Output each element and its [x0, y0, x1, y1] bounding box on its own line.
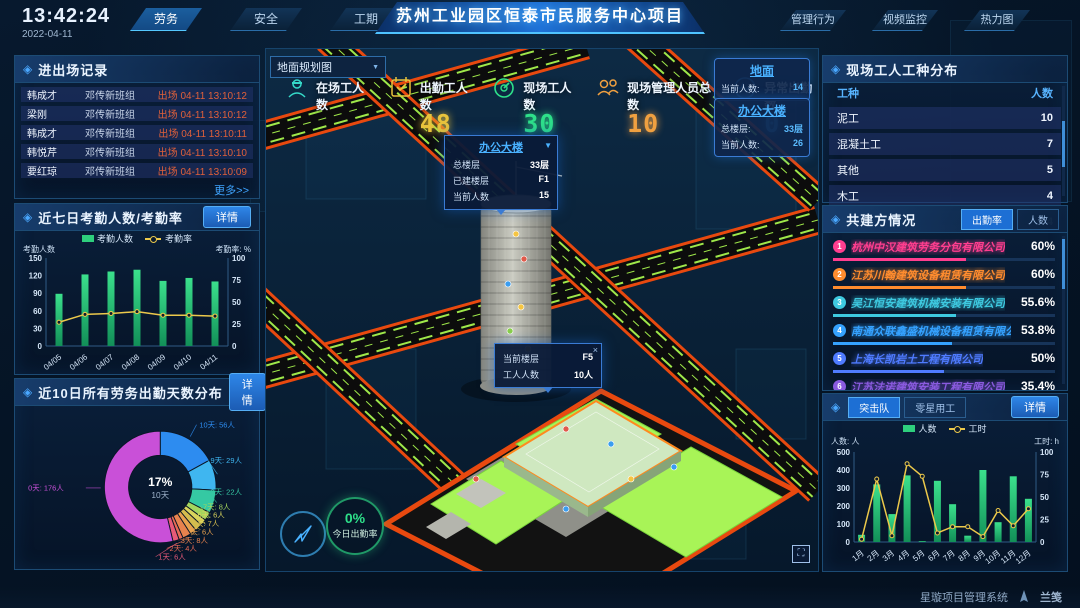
time-display: 13:42:24: [22, 5, 110, 28]
svg-text:1天: 6人: 1天: 6人: [158, 553, 186, 562]
rank-badge: 6: [833, 380, 846, 391]
svg-text:04/11: 04/11: [198, 352, 219, 371]
partner-row[interactable]: 1杭州中汉建筑劳务分包有限公司60%: [833, 239, 1057, 261]
calendar-check-icon: [388, 75, 414, 106]
svg-text:04/08: 04/08: [120, 352, 142, 372]
svg-text:9天: 29人: 9天: 29人: [210, 456, 242, 465]
svg-text:04/07: 04/07: [94, 352, 116, 372]
svg-text:90: 90: [33, 289, 42, 298]
squad-tabs: 突击队零星用工: [848, 397, 966, 418]
system-name: 星璇项目管理系统: [920, 589, 1008, 605]
map-view-dropdown[interactable]: 地面规划图 ▼: [270, 56, 386, 78]
distribution-donut-chart: 10天: 56人9天: 29人8天: 22人7天: 8人6天: 6人5天: 7人…: [16, 407, 258, 567]
entry-exit-list: 韩成才邓传新班组出场 04-11 13:10:12梁刚邓传新班组出场 04-11…: [15, 87, 259, 178]
partner-row[interactable]: 6江苏法诺建筑安装工程有限公司35.4%: [833, 379, 1057, 391]
svg-text:04/10: 04/10: [172, 352, 194, 372]
stat-出勤工人数: 出勤工人数48: [388, 75, 474, 135]
svg-text:75: 75: [232, 276, 241, 285]
legend-line-swatch: [949, 428, 965, 430]
worker-icon: [284, 75, 310, 106]
rank-badge: 4: [833, 324, 846, 337]
partner-row[interactable]: 3吴江恒安建筑机械安装有限公司55.6%: [833, 295, 1057, 317]
distribution-panel: ◈ 近10日所有劳务出勤天数分布 详情 10天: 56人9天: 29人8天: 2…: [14, 378, 260, 570]
attendance-detail-button[interactable]: 详情: [203, 206, 251, 228]
stat-value: 48: [420, 113, 474, 135]
svg-text:50: 50: [1040, 493, 1049, 502]
svg-text:0: 0: [38, 342, 43, 351]
entry-exit-row[interactable]: 梁刚邓传新班组出场 04-11 13:10:12: [21, 106, 253, 121]
rank-badge: 3: [833, 296, 846, 309]
svg-text:17%: 17%: [148, 475, 172, 489]
svg-text:50: 50: [232, 298, 241, 307]
panel-diamond-icon: ◈: [831, 212, 840, 226]
entry-exit-panel: ◈ 进出场记录 韩成才邓传新班组出场 04-11 13:10:12梁刚邓传新班组…: [14, 55, 260, 199]
worker-type-row[interactable]: 泥工10: [829, 107, 1061, 129]
stat-现场管理人员总数: 现场管理人员总数10: [595, 75, 714, 135]
worker-type-row[interactable]: 木工4: [829, 185, 1061, 207]
svg-text:100: 100: [837, 520, 851, 529]
more-link[interactable]: 更多>>: [15, 182, 249, 198]
entry-exit-row[interactable]: 要红琼邓传新班组出场 04-11 13:10:09: [21, 163, 253, 178]
right-nav-tabs: 管理行为视频监控热力图: [780, 10, 1030, 31]
legend-line-swatch: [145, 238, 161, 240]
attendance-panel: ◈ 近七日考勤人数/考勤率 详情 考勤人数 考勤率 考勤人数 考勤率: % 03…: [14, 203, 260, 375]
svg-text:25: 25: [232, 320, 241, 329]
distribution-detail-button[interactable]: 详情: [229, 373, 266, 411]
squad-chart: 010020030040050002550751001月2月3月4月5月6月7月…: [824, 444, 1066, 568]
attendance-legend: 考勤人数 考勤率: [15, 231, 259, 245]
nav-tab-视频监控[interactable]: 视频监控: [872, 10, 938, 31]
worker-type-row[interactable]: 其他5: [829, 159, 1061, 181]
compass-icon[interactable]: [280, 511, 326, 557]
nav-tab-安全[interactable]: 安全: [230, 8, 302, 31]
svg-text:04/05: 04/05: [42, 352, 64, 372]
people-icon: [595, 75, 621, 106]
partners-panel: ◈ 共建方情况 出勤率人数 1杭州中汉建筑劳务分包有限公司60%2江苏川翰建筑设…: [822, 205, 1068, 391]
stat-label: 出勤工人数: [420, 79, 474, 113]
chevron-down-icon: ▼: [372, 64, 379, 71]
panel-diamond-icon: ◈: [831, 62, 840, 76]
svg-text:3月: 3月: [881, 548, 896, 563]
squad-tab-零星用工[interactable]: 零星用工: [904, 397, 966, 418]
svg-text:04/06: 04/06: [68, 352, 90, 372]
svg-text:7月: 7月: [941, 548, 956, 563]
attendance-gauge: 0% 今日出勤率: [326, 497, 384, 555]
svg-text:60: 60: [33, 307, 42, 316]
floor-tooltip[interactable]: × 当前楼层F5 工人人数10人: [494, 343, 602, 388]
panel-diamond-icon: ◈: [23, 385, 32, 399]
svg-text:0: 0: [846, 538, 851, 547]
svg-text:6月: 6月: [926, 548, 941, 563]
entry-exit-row[interactable]: 韩悦芹邓传新班组出场 04-11 13:10:10: [21, 144, 253, 159]
gauge-icon: [491, 75, 517, 106]
worker-types-panel: ◈ 现场工人工种分布 工种人数 泥工10混凝土工7其他5木工4塔司4: [822, 55, 1068, 203]
footer-bar: 星璇项目管理系统 兰笺: [0, 586, 1080, 608]
svg-text:25: 25: [1040, 516, 1049, 525]
svg-text:2月: 2月: [866, 548, 881, 563]
page-title: 苏州工业园区恒泰市民服务中心项目: [375, 2, 705, 34]
nav-tab-热力图[interactable]: 热力图: [964, 10, 1030, 31]
close-icon[interactable]: ×: [593, 345, 598, 355]
stat-value: 10: [627, 113, 714, 135]
scrollbar[interactable]: [1062, 236, 1065, 384]
partners-title: 共建方情况: [846, 210, 916, 229]
squad-panel: ◈ 突击队零星用工 详情 人数 工时 人数: 人 工时: h 010020030…: [822, 393, 1068, 572]
entry-exit-title: 进出场记录: [38, 60, 108, 79]
stat-在场工人数: 在场工人数: [284, 75, 370, 135]
worker-types-header: 工种人数: [823, 83, 1067, 103]
stat-label: 现场管理人员总数: [627, 79, 714, 113]
svg-text:04/09: 04/09: [146, 352, 168, 372]
svg-text:8月: 8月: [957, 548, 972, 563]
partners-tab-出勤率[interactable]: 出勤率: [961, 209, 1013, 230]
svg-text:10天: 56人: 10天: 56人: [199, 420, 235, 429]
svg-text:8天: 22人: 8天: 22人: [210, 487, 242, 496]
legend-bar-swatch: [903, 425, 915, 432]
svg-text:4月: 4月: [896, 548, 911, 563]
chevron-down-icon[interactable]: ▼: [544, 141, 552, 150]
partner-row[interactable]: 2江苏川翰建筑设备租赁有限公司60%: [833, 267, 1057, 289]
svg-text:500: 500: [837, 448, 851, 457]
panel-diamond-icon: ◈: [23, 62, 32, 76]
partners-list: 1杭州中汉建筑劳务分包有限公司60%2江苏川翰建筑设备租赁有限公司60%3吴江恒…: [823, 239, 1067, 391]
svg-text:12月: 12月: [1014, 548, 1033, 566]
top-bar: 13:42:24 2022-04-11 劳务安全工期 苏州工业园区恒泰市民服务中…: [0, 0, 1080, 44]
svg-text:200: 200: [837, 502, 851, 511]
svg-text:120: 120: [29, 272, 43, 281]
ground-floor-card[interactable]: 地面 当前人数:14: [714, 58, 810, 101]
building-tooltip[interactable]: 办公大楼 ▼ 总楼层33层 已建楼层F1 当前人数15: [444, 135, 558, 210]
left-nav-tabs: 劳务安全工期: [130, 8, 402, 31]
entry-exit-row[interactable]: 韩成才邓传新班组出场 04-11 13:10:11: [21, 125, 253, 140]
svg-text:1月: 1月: [850, 548, 865, 563]
stat-label: 现场工人数: [523, 79, 577, 113]
svg-text:100: 100: [1040, 448, 1054, 457]
distribution-title: 近10日所有劳务出勤天数分布: [38, 383, 222, 402]
site-map-panel: 地面规划图 ▼ 在场工人数出勤工人数48现场工人数30现场管理人员总数10异常出…: [265, 48, 819, 572]
stat-value: 30: [523, 113, 577, 135]
fullscreen-icon[interactable]: ⛶: [792, 545, 810, 563]
svg-text:75: 75: [1040, 471, 1049, 480]
svg-text:100: 100: [232, 254, 246, 263]
svg-text:0天: 176人: 0天: 176人: [28, 484, 64, 493]
svg-text:5月: 5月: [911, 548, 926, 563]
svg-text:400: 400: [837, 466, 851, 475]
office-building-card[interactable]: 办公大楼 总楼层:33层 当前人数:26: [714, 98, 810, 157]
brand-logo-text: 兰笺: [1040, 589, 1062, 605]
rank-badge: 1: [833, 240, 846, 253]
squad-tab-突击队[interactable]: 突击队: [848, 397, 900, 418]
svg-text:300: 300: [837, 484, 851, 493]
worker-type-row[interactable]: 混凝土工7: [829, 133, 1061, 155]
svg-text:30: 30: [33, 324, 42, 333]
panel-diamond-icon: ◈: [831, 400, 840, 414]
partner-row[interactable]: 4南通众联鑫盛机械设备租赁有限公司53.8%: [833, 323, 1057, 345]
entry-exit-row[interactable]: 韩成才邓传新班组出场 04-11 13:10:12: [21, 87, 253, 102]
attendance-chart: 0306090120150025507510004/0504/0604/0704…: [16, 250, 258, 372]
scrollbar[interactable]: [1062, 86, 1065, 196]
panel-diamond-icon: ◈: [23, 210, 32, 224]
worker-types-title: 现场工人工种分布: [846, 60, 958, 79]
stat-label: 在场工人数: [316, 79, 370, 113]
svg-text:0: 0: [232, 342, 237, 351]
svg-text:0: 0: [1040, 538, 1045, 547]
rank-badge: 2: [833, 268, 846, 281]
nav-tab-劳务[interactable]: 劳务: [130, 8, 202, 31]
svg-text:10天: 10天: [151, 490, 169, 500]
partner-row[interactable]: 5上海长凯岩土工程有限公司50%: [833, 351, 1057, 373]
legend-bar-swatch: [82, 235, 94, 242]
partners-tab-人数[interactable]: 人数: [1017, 209, 1059, 230]
squad-legend: 人数 工时: [823, 421, 1067, 435]
svg-text:150: 150: [29, 254, 43, 263]
stat-现场工人数: 现场工人数30: [491, 75, 577, 135]
partners-tabs: 出勤率人数: [961, 209, 1059, 230]
clock: 13:42:24 2022-04-11: [22, 5, 110, 40]
squad-detail-button[interactable]: 详情: [1011, 396, 1059, 418]
rank-badge: 5: [833, 352, 846, 365]
nav-tab-管理行为[interactable]: 管理行为: [780, 10, 846, 31]
brand-logo-icon: [1018, 590, 1030, 604]
date-display: 2022-04-11: [22, 29, 110, 40]
attendance-title: 近七日考勤人数/考勤率: [38, 208, 183, 227]
